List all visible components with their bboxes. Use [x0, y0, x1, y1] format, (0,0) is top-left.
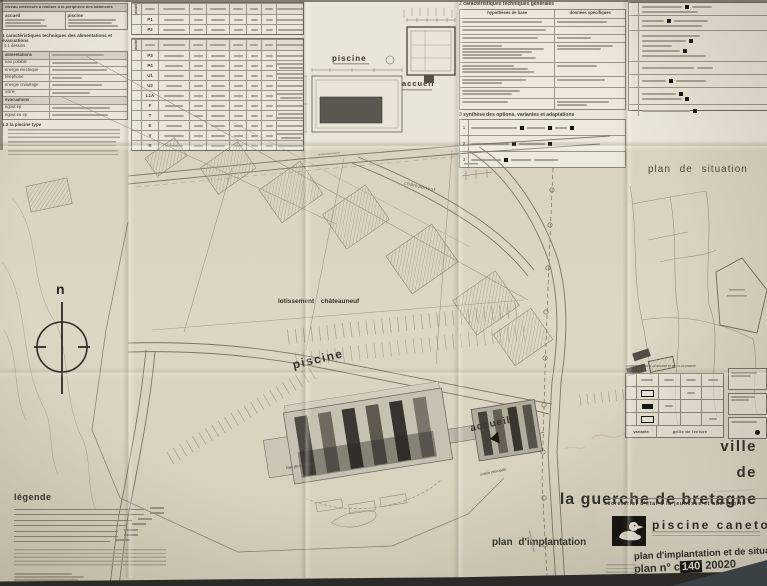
lotissement-building	[323, 185, 390, 249]
scanned-plan-photo: niveau extérieurs à réaliser à la périph…	[0, 0, 767, 586]
schema-piscine-plan	[304, 56, 402, 132]
fold-crease	[453, 0, 464, 578]
option-symbol	[641, 416, 654, 423]
city-line: de	[560, 460, 757, 486]
legend-row	[14, 538, 174, 543]
side-box	[728, 393, 767, 415]
north-compass-icon	[34, 302, 90, 394]
city-line: ville	[560, 434, 757, 460]
illegible-text-line	[132, 523, 146, 525]
table-row	[626, 412, 723, 425]
lotissement-buildings	[26, 138, 553, 366]
illegible-text-line	[138, 518, 152, 520]
illegible-paragraph	[14, 549, 166, 568]
legend-title: légende	[14, 492, 174, 502]
illegible-text-line	[14, 579, 78, 581]
north-label: n	[56, 281, 65, 297]
fold-crease	[622, 0, 633, 578]
schema-accueil-plan	[404, 8, 455, 83]
illegible-text-line	[708, 379, 718, 381]
legend-notes	[14, 573, 174, 581]
project-title: piscine caneton	[652, 518, 767, 532]
implantation-title: plan d'implantation	[492, 537, 586, 548]
illegible-text-line	[687, 392, 695, 394]
illegible-text-line	[686, 379, 696, 381]
illegible-text-line	[731, 421, 757, 423]
schema-entry-block	[424, 75, 434, 83]
option-symbol	[641, 390, 654, 397]
illegible-text-line	[150, 507, 164, 509]
legend-block: légende	[14, 492, 174, 582]
illegible-text-line	[14, 573, 72, 575]
photo-edge	[0, 0, 767, 2]
illegible-text-line	[665, 405, 673, 407]
situation-title: plan de situation	[648, 164, 748, 175]
grille-side-boxes	[728, 368, 767, 442]
fold-crease	[300, 0, 311, 578]
illegible-text-line	[709, 418, 717, 420]
situation-building	[632, 348, 651, 361]
fold-crease	[123, 0, 134, 578]
illegible-text-line	[14, 576, 84, 578]
fold-crease	[0, 141, 767, 150]
illegible-text-line	[664, 379, 674, 381]
illegible-text-line	[652, 531, 760, 536]
dimension-ticks	[462, 163, 492, 180]
contour-lines	[2, 198, 96, 510]
parcel-lines	[152, 150, 524, 364]
illegible-text-line	[731, 399, 749, 401]
table-row	[626, 399, 723, 412]
photo-edge	[0, 0, 3, 150]
option-symbol-filled	[642, 404, 653, 409]
lotissement-label: lotissement châteauneuf	[278, 298, 359, 305]
illegible-text-line	[150, 512, 164, 514]
plan-number-highlight: 140	[680, 560, 703, 573]
fold-crease	[0, 368, 767, 377]
illegible-text-line	[641, 379, 653, 381]
illegible-text-line	[731, 396, 755, 398]
lotissement-building	[26, 178, 72, 212]
lotissement-building	[386, 224, 458, 294]
table-row	[626, 386, 723, 399]
